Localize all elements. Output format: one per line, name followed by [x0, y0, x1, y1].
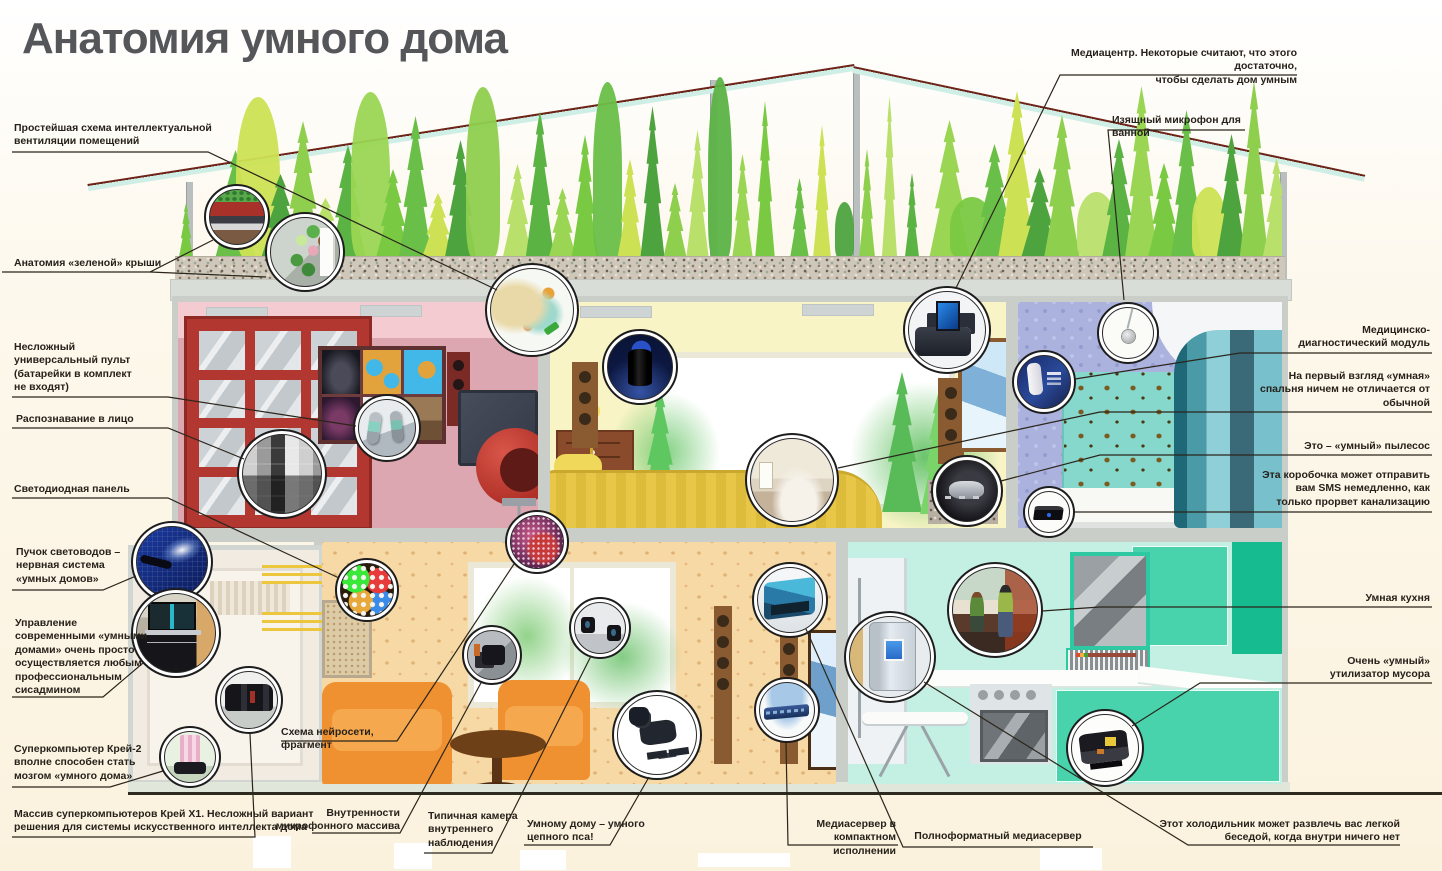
radiator — [210, 581, 290, 615]
callout-green-roof: Анатомия «зеленой» крыши — [14, 257, 234, 270]
callout-fridge: Этот холодильник может развлечь вас легк… — [1150, 818, 1400, 845]
callout-med-module: Медицинско- диагностический модуль — [1230, 324, 1430, 351]
callout-face-recognition: Распознавание в лицо — [16, 413, 186, 426]
roof-plant — [593, 82, 622, 258]
callout-robodog: Умному дому – умного цепного пса! — [527, 818, 657, 845]
infographic-canvas: Анатомия умного дома — [0, 0, 1442, 871]
callout-mediacenter: Медиацентр. Некоторые считают, что этого… — [1047, 47, 1297, 87]
led-panel-photo — [340, 563, 394, 617]
callout-fiber: Пучок световодов – нервная система «умны… — [16, 546, 146, 586]
roof-plant — [904, 173, 920, 258]
smart-speaker-photo — [607, 334, 673, 400]
roof-plant — [178, 203, 194, 258]
blank-patch — [253, 836, 291, 868]
callout-led-panel: Светодиодная панель — [14, 483, 184, 496]
callout-camera: Типичная камера внутреннего наблюдения — [428, 810, 528, 850]
robot-dog-photo — [617, 695, 697, 775]
roof-plant — [685, 130, 710, 258]
roof-plant — [524, 111, 556, 258]
page-title: Анатомия умного дома — [22, 14, 507, 64]
callout-bath-mic: Изящный микрофон для ванной — [1112, 114, 1272, 141]
callout-sms-box: Эта коробочка может отправить вам SMS не… — [1210, 469, 1430, 509]
inset-smart-fridge — [844, 611, 936, 703]
inset-trash-utilizer — [1066, 709, 1144, 787]
roof-plant — [835, 202, 854, 258]
ironing-board — [862, 712, 968, 724]
blank-patch — [1040, 848, 1102, 870]
green-roof-layers-photo — [209, 189, 265, 245]
speaker-column — [714, 606, 732, 764]
blank-patch — [394, 843, 432, 869]
neural-net-photo — [510, 515, 564, 569]
ball-chair-seat — [500, 448, 538, 492]
callout-mic-array: Внутренности микрофонного массива — [270, 807, 400, 834]
inset-robot-vacuum — [931, 455, 1003, 527]
inset-face-recognition — [237, 429, 327, 519]
inset-green-roof-modules — [265, 212, 345, 292]
coffee-table — [450, 730, 546, 758]
inset-neural-net — [505, 510, 569, 574]
inset-media-center — [903, 286, 991, 374]
inset-green-roof-layers — [204, 184, 270, 250]
callout-kitchen: Умная кухня — [1280, 592, 1430, 605]
ceiling-vent — [802, 304, 874, 316]
compact-media-server-photo — [759, 682, 815, 738]
callout-sysadmin: Управление современными «умными домами» … — [15, 617, 165, 698]
trash-utilizer-photo — [1071, 714, 1139, 782]
roof-plant — [708, 77, 732, 258]
inset-ventilation-scheme — [485, 263, 579, 357]
roof-plant — [1238, 81, 1270, 258]
inset-microphone-array — [462, 625, 522, 685]
bathroom-microphone-photo — [1102, 307, 1154, 359]
inset-compact-media-server — [754, 677, 820, 743]
kitchen-wall-screen — [1070, 552, 1150, 650]
smart-kitchen-photo — [952, 567, 1038, 653]
inset-smart-speaker — [602, 329, 678, 405]
roof-plant — [754, 101, 776, 258]
inset-sms-box — [1023, 486, 1075, 538]
robot-vacuum-photo — [936, 460, 998, 522]
kitchen-control-keyboard — [1066, 648, 1150, 672]
coffee-table-stem — [492, 754, 502, 784]
inset-led-panel — [335, 558, 399, 622]
smart-fridge-photo — [849, 616, 931, 698]
roof-plant — [397, 116, 434, 258]
inset-surveillance-camera — [569, 597, 631, 659]
callout-compact-server: Медиасервер в компактном исполнении — [756, 818, 896, 858]
green-roof-modules-photo — [270, 217, 340, 287]
callout-bedroom: На первый взгляд «умная» спальня ничем н… — [1210, 370, 1430, 410]
stove — [970, 684, 1052, 764]
callout-vacuum: Это – «умный» пылесос — [1230, 440, 1430, 453]
inset-cray-x1-array — [215, 666, 283, 734]
medical-module-photo — [1017, 355, 1071, 409]
sms-box-photo — [1028, 491, 1070, 533]
inset-bathroom-microphone — [1097, 302, 1159, 364]
oven — [980, 710, 1048, 762]
ceiling-vent — [580, 306, 652, 318]
cray-x1-array-photo — [220, 671, 278, 729]
callout-crayx1: Массив суперкомпьютеров Крей Х1. Несложн… — [14, 808, 314, 835]
bedroom-photo — [750, 438, 834, 522]
microphone-array-photo — [467, 630, 517, 680]
roof-plant — [812, 125, 832, 258]
inset-robot-dog — [612, 690, 702, 780]
tower-speaker — [572, 362, 598, 448]
callout-trash: Очень «умный» утилизатор мусора — [1270, 655, 1430, 682]
inset-full-media-server — [752, 562, 828, 638]
roof-plant — [789, 178, 810, 258]
green-roof-plants — [178, 72, 1282, 258]
callout-cray2: Суперкомпьютер Крей-2 вполне способен ст… — [14, 743, 164, 783]
wall-cabinet-dark — [1232, 542, 1282, 654]
ironing-board-leg — [921, 725, 951, 778]
roof-plant — [639, 106, 666, 258]
ventilation-scheme-photo — [490, 268, 574, 352]
callout-remote: Несложный универсальный пульт (батарейки… — [14, 341, 184, 395]
callout-full-server: Полноформатный медиасервер — [903, 830, 1093, 843]
cray-2-photo — [164, 731, 216, 783]
callout-ventilation: Простейшая схема интеллектуальной вентил… — [14, 122, 244, 149]
face-recognition-photo — [242, 434, 322, 514]
roof-plant — [731, 154, 754, 258]
roof-plant — [466, 87, 500, 258]
universal-remote-photo — [358, 399, 416, 457]
inset-medical-module — [1012, 350, 1076, 414]
roof-plant — [881, 96, 898, 258]
roof-plant — [662, 183, 688, 258]
roof-plant — [858, 149, 876, 258]
inset-smart-kitchen — [947, 562, 1043, 658]
inset-universal-remote — [353, 394, 421, 462]
inset-cray-2 — [159, 726, 221, 788]
ground-line — [128, 792, 1442, 795]
callout-neural: Схема нейросети, фрагмент — [281, 726, 411, 753]
blank-patch — [520, 850, 566, 870]
roof-plant — [1042, 115, 1082, 258]
inset-bedroom — [745, 433, 839, 527]
surveillance-camera-photo — [574, 602, 626, 654]
media-center-photo — [908, 291, 986, 369]
coffee-table-base — [474, 782, 520, 784]
full-media-server-photo — [757, 567, 823, 633]
